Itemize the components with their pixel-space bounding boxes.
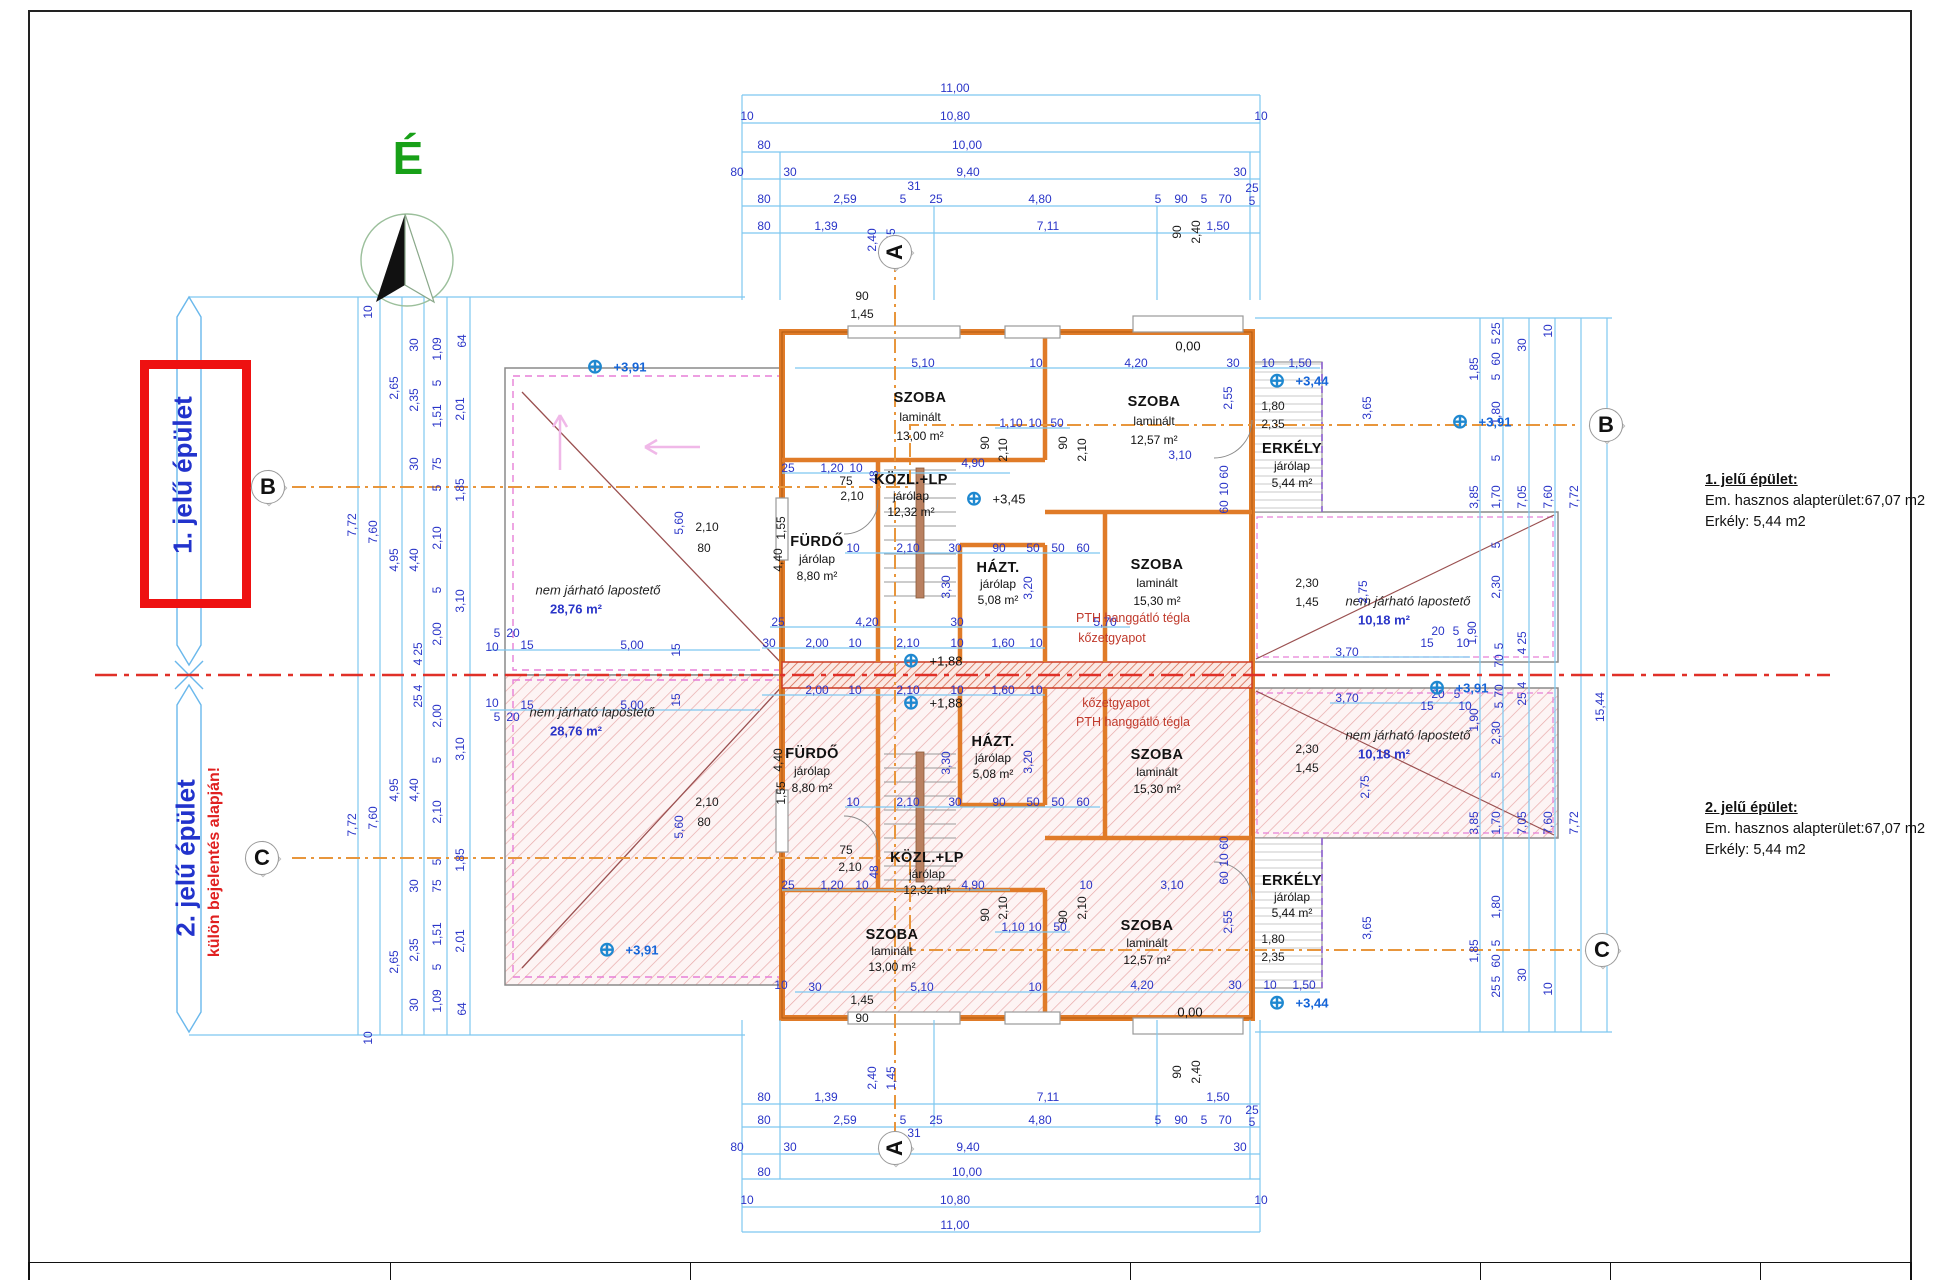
plan-label: 10: [1542, 982, 1554, 995]
plan-label: 90: [1057, 910, 1069, 923]
plan-label: 3,30: [940, 751, 952, 774]
plan-label: 1,80: [1261, 933, 1284, 945]
plan-label: 7,60: [367, 520, 379, 543]
plan-label: 60: [1490, 352, 1502, 365]
plan-label: nem járható lapostető: [1345, 729, 1470, 742]
plan-label: 25: [929, 1114, 942, 1126]
plan-label: 2,35: [408, 938, 420, 961]
plan-label: 12,32 m²: [903, 884, 950, 896]
plan-label: 4,95: [388, 548, 400, 571]
plan-label: 1,51: [431, 404, 443, 427]
plan-label: 15: [520, 639, 533, 651]
plan-label: 12,57 m²: [1123, 954, 1170, 966]
building-2-sublabel: külön bejelentés alapján!: [206, 767, 224, 957]
plan-label: 10: [1254, 110, 1267, 122]
plan-label: 2,30: [1490, 721, 1502, 744]
plan-label: 10: [1542, 324, 1554, 337]
plan-label: 5,44 m²: [1272, 907, 1313, 919]
plan-label: 70: [1218, 1114, 1231, 1126]
plan-label: 5: [1490, 976, 1502, 983]
plan-label: 10: [1218, 482, 1230, 495]
plan-label: 5: [1490, 772, 1502, 779]
plan-label: 15: [1420, 637, 1433, 649]
plan-label: 9,40: [956, 1141, 979, 1153]
plan-label: 48: [868, 865, 880, 878]
plan-label: 60: [1218, 871, 1230, 884]
plan-label: 90: [992, 796, 1005, 808]
plan-label: 10: [1028, 417, 1041, 429]
plan-label: 7,05: [1516, 485, 1528, 508]
plan-label: 4,40: [408, 778, 420, 801]
plan-label: 10: [846, 542, 859, 554]
plan-label: 80: [757, 220, 770, 232]
plan-label: laminált: [871, 945, 912, 957]
plan-label: 5: [431, 964, 443, 971]
plan-label: 50: [1026, 796, 1039, 808]
plan-label: 2,01: [454, 397, 466, 420]
plan-label: 10: [1261, 357, 1274, 369]
plan-label: 1,45: [1295, 762, 1318, 774]
plan-label: 75: [839, 475, 852, 487]
plan-label: +3,91: [614, 361, 647, 374]
plan-label: 30: [1516, 338, 1528, 351]
plan-label: 10: [362, 305, 374, 318]
plan-label: 25: [1490, 322, 1502, 335]
plan-label: 1,10: [999, 417, 1022, 429]
plan-label: 7,05: [1516, 811, 1528, 834]
plan-label: 10: [740, 110, 753, 122]
plan-label: 90: [855, 290, 868, 302]
plan-label: 5,60: [673, 511, 685, 534]
plan-label: 1,50: [1206, 1091, 1229, 1103]
plan-label: 2,10: [695, 796, 718, 808]
plan-label: 5: [1490, 940, 1502, 947]
plan-label: 5: [1155, 193, 1162, 205]
room-furdo-2: FÜRDŐ: [785, 747, 839, 762]
plan-label: +1,88: [930, 697, 963, 710]
plan-label: 3,20: [1022, 576, 1034, 599]
plan-label: 10: [849, 462, 862, 474]
plan-label: 11,00: [940, 82, 969, 94]
plan-label: 90: [1174, 193, 1187, 205]
room-erkely-2: ERKÉLY: [1262, 874, 1322, 889]
plan-label: 5,60: [673, 815, 685, 838]
plan-label: 31: [907, 180, 920, 192]
plan-label: 3,10: [454, 737, 466, 760]
plan-label: 10: [362, 1031, 374, 1044]
plan-label: 30: [408, 338, 420, 351]
plan-label: 4,80: [1028, 1114, 1051, 1126]
plan-label: 13,00 m²: [868, 961, 915, 973]
plan-label: 2,40: [866, 228, 878, 251]
plan-label: 50: [1051, 796, 1064, 808]
plan-label: 20: [506, 627, 519, 639]
plan-label: 2,10: [1076, 438, 1088, 461]
plan-label: 3,65: [1361, 396, 1373, 419]
plan-label: 1,10: [1001, 921, 1024, 933]
plan-label: 25: [412, 642, 424, 655]
plan-label: 2,10: [431, 526, 443, 549]
plan-label: 80: [757, 1091, 770, 1103]
plan-label: 80: [697, 816, 710, 828]
plan-label: 2,00: [431, 622, 443, 645]
plan-label: 1,20: [820, 879, 843, 891]
plan-label: 0,00: [1175, 340, 1200, 353]
plan-label: 25: [771, 616, 784, 628]
plan-label: járólap: [909, 868, 945, 880]
plan-label: járólap: [1274, 460, 1310, 472]
plan-label: 10: [1456, 637, 1469, 649]
elevation-marker-icon: ⊕: [599, 940, 616, 960]
section-marker-c-left: C: [245, 841, 279, 875]
plan-label: 15,30 m²: [1133, 783, 1180, 795]
plan-label: 10: [950, 637, 963, 649]
plan-label: 25: [1245, 182, 1258, 194]
plan-label: 2,10: [840, 490, 863, 502]
plan-label: 7,60: [1542, 485, 1554, 508]
plan-label: 2,40: [1190, 220, 1202, 243]
plan-label: 5: [431, 859, 443, 866]
plan-label: 5: [900, 193, 907, 205]
plan-label: 3,10: [454, 589, 466, 612]
plan-label: 2,40: [1190, 1060, 1202, 1083]
room-hazt-1: HÁZT.: [976, 561, 1019, 576]
plan-label: 5: [1493, 643, 1505, 650]
building-1-label: 1. jelű épület: [168, 396, 199, 554]
room-szoba-3: SZOBA: [1131, 558, 1184, 573]
plan-label: 3,70: [1335, 646, 1358, 658]
plan-label: 5,10: [910, 981, 933, 993]
plan-label: 80: [757, 193, 770, 205]
plan-label: PTH hanggátló tégla: [1076, 716, 1190, 729]
section-marker-a-bottom: A: [878, 1131, 912, 1165]
plan-label: 4,20: [855, 616, 878, 628]
plan-label: 4,40: [772, 548, 784, 571]
plan-label: 80: [730, 1141, 743, 1153]
plan-label: +3,91: [1456, 682, 1489, 695]
building-2-label: 2. jelű épület: [171, 779, 202, 937]
plan-label: 5: [1201, 1114, 1208, 1126]
note-building-2: 2. jelű épület: Em. hasznos alapterület:…: [1705, 798, 1939, 861]
plan-label: 25: [412, 694, 424, 707]
elevation-marker-icon: ⊕: [1269, 371, 1286, 391]
plan-label: 1,60: [991, 684, 1014, 696]
note-1-line-1: Em. hasznos alapterület:67,07 m2: [1705, 491, 1939, 512]
plan-label: 4,90: [961, 457, 984, 469]
plan-label: 25: [781, 462, 794, 474]
plan-label: 0,00: [1177, 1006, 1202, 1019]
plan-label: 12,57 m²: [1130, 434, 1177, 446]
plan-label: 1,45: [1295, 596, 1318, 608]
plan-label: 15: [670, 643, 682, 656]
plan-label: járólap: [975, 752, 1011, 764]
plan-label: járólap: [980, 578, 1016, 590]
plan-label: 5,00: [620, 639, 643, 651]
plan-label: 5,08 m²: [978, 594, 1019, 606]
plan-label: 30: [408, 457, 420, 470]
plan-label: 1,85: [454, 848, 466, 871]
plan-label: járólap: [799, 553, 835, 565]
plan-label: 90: [1174, 1114, 1187, 1126]
plan-label: 2,30: [1490, 575, 1502, 598]
plan-label: 1,55: [775, 781, 787, 804]
plan-label: 1,50: [1288, 357, 1311, 369]
plan-label: 1,85: [1468, 357, 1480, 380]
plan-label: laminált: [1136, 577, 1177, 589]
plan-label: nem járható lapostető: [535, 584, 660, 597]
title-block-divider: [1130, 1263, 1131, 1280]
plan-label: 10: [740, 1194, 753, 1206]
plan-label: laminált: [1136, 766, 1177, 778]
plan-label: 1,70: [1490, 485, 1502, 508]
room-kozl-2: KÖZL.+LP: [890, 851, 964, 866]
plan-label: 25: [1516, 692, 1528, 705]
plan-label: 10: [1029, 684, 1042, 696]
plan-label: 5: [431, 485, 443, 492]
plan-label: 1,39: [814, 220, 837, 232]
room-szoba-2: SZOBA: [1128, 395, 1181, 410]
plan-label: 2,59: [833, 1114, 856, 1126]
plan-label: 2,10: [838, 861, 861, 873]
plan-label: PTH hanggátló tégla: [1076, 612, 1190, 625]
plan-label: járólap: [893, 490, 929, 502]
plan-label: 80: [757, 139, 770, 151]
plan-label: 15: [1420, 700, 1433, 712]
plan-label: 4,20: [1124, 357, 1147, 369]
plan-label: 64: [456, 334, 468, 347]
plan-label: 2,30: [1295, 577, 1318, 589]
plan-label: 2,10: [997, 896, 1009, 919]
plan-label: 4,80: [1028, 193, 1051, 205]
plan-label: 1,70: [1490, 811, 1502, 834]
plan-label: 3,85: [1468, 811, 1480, 834]
plan-label: 4: [412, 685, 424, 692]
plan-label: 90: [1171, 1065, 1183, 1078]
plan-label: 1,09: [431, 989, 443, 1012]
plan-label: 10: [1263, 979, 1276, 991]
plan-label: 75: [431, 457, 443, 470]
plan-label: 1,60: [991, 637, 1014, 649]
plan-label: 15: [670, 693, 682, 706]
plan-label: +1,88: [930, 655, 963, 668]
plan-label: 2,55: [1222, 910, 1234, 933]
plan-label: 4: [412, 659, 424, 666]
plan-label: 30: [783, 166, 796, 178]
room-hazt-2: HÁZT.: [971, 735, 1014, 750]
plan-label: 10: [1028, 921, 1041, 933]
plan-label: 10,18 m²: [1358, 614, 1410, 627]
plan-label: laminált: [899, 411, 940, 423]
plan-label: 3,20: [1022, 750, 1034, 773]
plan-label: 75: [431, 879, 443, 892]
plan-label: 30: [1233, 1141, 1246, 1153]
section-marker-a-top: A: [878, 235, 912, 269]
plan-label: 15: [520, 699, 533, 711]
plan-label: 2,10: [896, 637, 919, 649]
plan-label: 10: [855, 879, 868, 891]
room-szoba-1b: SZOBA: [866, 928, 919, 943]
plan-label: 7,72: [346, 513, 358, 536]
plan-label: 1,45: [850, 994, 873, 1006]
plan-label: 5,08 m²: [973, 768, 1014, 780]
plan-label: 5: [431, 587, 443, 594]
north-label: É: [393, 131, 424, 185]
plan-label: 2,10: [896, 796, 919, 808]
plan-label: 15,30 m²: [1133, 595, 1180, 607]
plan-label: 10,00: [952, 1166, 982, 1178]
plan-label: 2,65: [388, 950, 400, 973]
plan-label: 2,55: [1222, 386, 1234, 409]
elevation-marker-icon: ⊕: [1452, 412, 1469, 432]
plan-label: 80: [757, 1114, 770, 1126]
plan-label: 2,75: [1357, 580, 1369, 603]
plan-label: 2,10: [431, 800, 443, 823]
plan-label: 2,10: [1076, 896, 1088, 919]
plan-label: 25: [781, 879, 794, 891]
plan-label: 2,75: [1359, 775, 1371, 798]
plan-label: 1,39: [814, 1091, 837, 1103]
room-szoba-3b: SZOBA: [1131, 748, 1184, 763]
plan-label: 8,80 m²: [797, 570, 838, 582]
section-marker-b-right: B: [1589, 408, 1623, 442]
plan-label: 1,09: [431, 337, 443, 360]
plan-label: 90: [1171, 225, 1183, 238]
plan-label: 10: [485, 641, 498, 653]
plan-label: kőzetgyapot: [1078, 632, 1145, 645]
plan-label: 1,20: [820, 462, 843, 474]
plan-label: 30: [948, 542, 961, 554]
plan-label: 60: [1076, 796, 1089, 808]
note-building-1: 1. jelű épület: Em. hasznos alapterület:…: [1705, 470, 1939, 533]
plan-label: 80: [730, 166, 743, 178]
plan-label: +3,45: [993, 493, 1026, 506]
plan-label: járólap: [1274, 891, 1310, 903]
plan-label: 1,51: [431, 922, 443, 945]
plan-label: +3,91: [1479, 416, 1512, 429]
plan-label: 5: [494, 711, 501, 723]
room-szoba-1: SZOBA: [894, 391, 947, 406]
note-2-line-2: Erkély: 5,44 m2: [1705, 840, 1939, 861]
note-1-line-2: Erkély: 5,44 m2: [1705, 512, 1939, 533]
plan-label: 1,85: [454, 478, 466, 501]
plan-label: 4,90: [961, 879, 984, 891]
plan-label: 80: [757, 1166, 770, 1178]
plan-label: 5: [431, 757, 443, 764]
plan-label: 10,80: [940, 1194, 970, 1206]
room-kozl-1: KÖZL.+LP: [874, 473, 948, 488]
plan-label: 10: [1029, 357, 1042, 369]
plan-label: 5: [1490, 374, 1502, 381]
plan-label: 10: [1029, 637, 1042, 649]
plan-label: 3,10: [1160, 879, 1183, 891]
plan-label: 1,80: [1261, 400, 1284, 412]
plan-label: 5: [431, 380, 443, 387]
elevation-marker-icon: ⊕: [903, 693, 920, 713]
plan-label: 5,44 m²: [1272, 477, 1313, 489]
plan-label: 10: [1458, 700, 1471, 712]
flat-roof-lower-left: [505, 675, 790, 985]
plan-label: 10: [1079, 879, 1092, 891]
plan-label: 60: [1076, 542, 1089, 554]
plan-label: 2,00: [805, 684, 828, 696]
title-block-divider: [1480, 1263, 1481, 1280]
plan-label: 2,00: [805, 637, 828, 649]
title-block-divider: [690, 1263, 691, 1280]
plan-label: 1,45: [850, 308, 873, 320]
plan-label: 5: [1249, 1116, 1256, 1128]
plan-label: 25: [1516, 631, 1528, 644]
plan-label: 4: [1516, 648, 1528, 655]
room-furdo-1: FÜRDŐ: [790, 535, 844, 550]
plan-label: 50: [1050, 417, 1063, 429]
plan-label: 10: [846, 796, 859, 808]
plan-label: 50: [1051, 542, 1064, 554]
plan-label: 10: [1028, 981, 1041, 993]
plan-label: 90: [979, 908, 991, 921]
plan-label: 60: [1218, 500, 1230, 513]
plan-label: 80: [697, 542, 710, 554]
plan-label: 50: [1026, 542, 1039, 554]
plan-label: 2,01: [454, 929, 466, 952]
plan-label: 70: [1493, 684, 1505, 697]
room-szoba-2b: SZOBA: [1121, 919, 1174, 934]
plan-label: 2,10: [695, 521, 718, 533]
plan-label: 1,50: [1206, 220, 1229, 232]
plan-label: 30: [762, 637, 775, 649]
plan-label: 10: [950, 684, 963, 696]
plan-label: 5: [1201, 193, 1208, 205]
plan-label: 10: [485, 697, 498, 709]
title-block-divider: [1610, 1263, 1611, 1280]
plan-label: 5: [1249, 195, 1256, 207]
note-2-line-1: Em. hasznos alapterület:67,07 m2: [1705, 819, 1939, 840]
plan-label: 60: [1218, 836, 1230, 849]
plan-label: 2,40: [866, 1066, 878, 1089]
plan-label: 30: [1233, 166, 1246, 178]
elevation-marker-icon: ⊕: [1429, 678, 1446, 698]
plan-label: 7,60: [367, 806, 379, 829]
plan-label: 28,76 m²: [550, 725, 602, 738]
plan-label: 5,10: [911, 357, 934, 369]
plan-label: 2,35: [408, 388, 420, 411]
plan-label: 7,60: [1542, 811, 1554, 834]
plan-label: 8,80 m²: [792, 782, 833, 794]
plan-label: 7,72: [346, 813, 358, 836]
plan-label: 90: [979, 436, 991, 449]
plan-label: 4,40: [772, 748, 784, 771]
plan-label: 5: [1490, 455, 1502, 462]
plan-label: 2,00: [431, 704, 443, 727]
drawing-sheet: 11,001010,80108010,0080309,4030802,59531…: [0, 0, 1939, 1280]
plan-label: 7,11: [1037, 1091, 1059, 1103]
plan-label: +3,44: [1296, 375, 1329, 388]
plan-label: 2,35: [1261, 951, 1284, 963]
title-block-divider: [1760, 1263, 1761, 1280]
plan-label: 5: [1155, 1114, 1162, 1126]
plan-label: 1,55: [775, 516, 787, 539]
plan-label: 30: [408, 879, 420, 892]
plan-label: 10,18 m²: [1358, 748, 1410, 761]
plan-label: 10: [1254, 1194, 1267, 1206]
plan-label: 5: [900, 1114, 907, 1126]
elevation-marker-icon: ⊕: [1269, 993, 1286, 1013]
plan-label: 10: [848, 684, 861, 696]
plan-label: 10: [1218, 853, 1230, 866]
north-compass: [361, 214, 453, 306]
plan-label: 2,10: [896, 542, 919, 554]
plan-label: 7,11: [1037, 220, 1059, 232]
plan-label: 11,00: [940, 1219, 969, 1231]
